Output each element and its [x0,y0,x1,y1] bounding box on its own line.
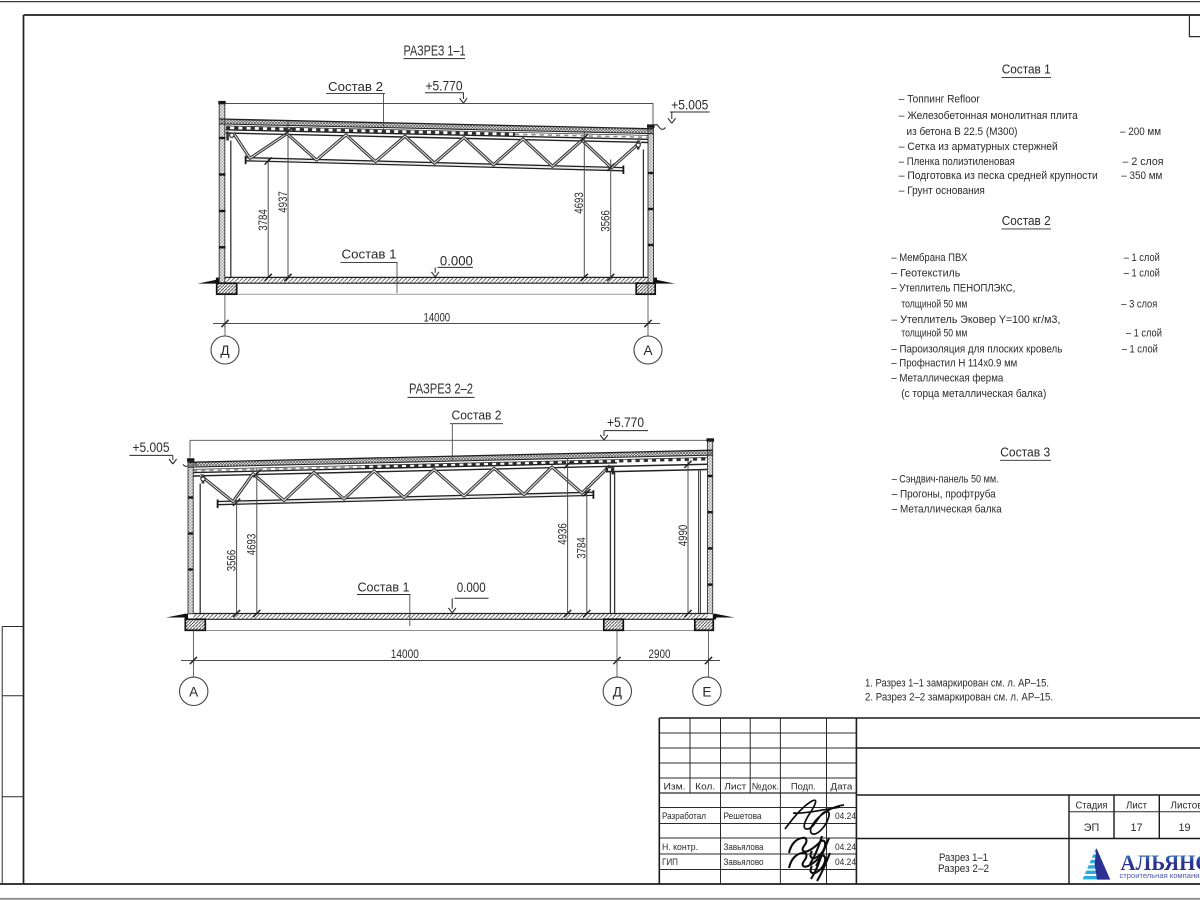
svg-text:14000: 14000 [424,311,451,325]
svg-text:3784: 3784 [256,209,270,231]
svg-text:– 2 слоя: – 2 слоя [1123,156,1164,168]
svg-text:19: 19 [1178,822,1190,834]
svg-text:Д: Д [613,684,622,699]
svg-text:2. Разрез 2–2 замаркирован см.: 2. Разрез 2–2 замаркирован см. л. АР–15. [865,692,1053,704]
svg-text:Е: Е [702,684,711,699]
svg-text:– Геотекстиль: – Геотекстиль [891,268,960,280]
svg-text:– 1 слой: – 1 слой [1126,328,1162,340]
svg-text:– Топпинг Refloor: – Топпинг Refloor [899,94,980,106]
svg-text:А: А [189,684,199,699]
svg-text:ЭП: ЭП [1084,822,1100,834]
svg-text:толщиной 50 мм: толщиной 50 мм [901,328,967,340]
svg-text:– Пленка полиэтиленовая: – Пленка полиэтиленовая [899,156,1015,168]
svg-text:+5.005: +5.005 [671,98,708,114]
svg-text:– Прогоны, профтруба: – Прогоны, профтруба [892,489,997,501]
svg-text:Состав 2: Состав 2 [1002,213,1051,228]
svg-text:Завьялово: Завьялово [724,857,764,867]
svg-text:– Сетка из арматурных стержней: – Сетка из арматурных стержней [899,141,1058,153]
svg-text:– Профнастил Н 114х0.9 мм: – Профнастил Н 114х0.9 мм [891,358,1017,370]
svg-text:+5.770: +5.770 [426,79,463,95]
svg-text:Разрез 2–2: Разрез 2–2 [938,863,989,875]
svg-text:3566: 3566 [224,549,238,571]
svg-text:Состав 1: Состав 1 [1002,62,1051,77]
svg-text:АЛЬЯНС: АЛЬЯНС [1121,850,1200,875]
svg-text:04.24: 04.24 [835,842,856,852]
svg-text:14000: 14000 [391,647,419,661]
svg-text:Подп.: Подп. [791,782,816,793]
svg-text:0.000: 0.000 [440,254,473,269]
svg-text:1. Разрез 1–1 замаркирован см.: 1. Разрез 1–1 замаркирован см. л. АР–15. [865,678,1049,690]
svg-text:Состав 1: Состав 1 [342,247,397,262]
svg-text:Дата: Дата [830,782,853,793]
svg-text:РАЗРЕЗ 2–2: РАЗРЕЗ 2–2 [409,381,473,398]
svg-text:– Утеплитель ПЕНОПЛЭКС,: – Утеплитель ПЕНОПЛЭКС, [891,282,1015,294]
svg-text:– Утеплитель Эковер Y=100 кг/м: – Утеплитель Эковер Y=100 кг/м3, [891,314,1060,326]
svg-text:– 1 слой: – 1 слой [1124,252,1160,264]
svg-text:2900: 2900 [649,647,671,661]
svg-text:Разработал: Разработал [662,811,706,821]
svg-text:Листов: Листов [1171,800,1200,811]
svg-text:4693: 4693 [245,533,259,555]
svg-text:+5.770: +5.770 [607,415,644,431]
svg-text:– Пароизоляция для плоских кро: – Пароизоляция для плоских кровель [891,344,1062,356]
svg-text:– 3 слоя: – 3 слоя [1121,299,1157,311]
svg-text:№док.: №док. [752,782,779,793]
svg-text:А: А [643,343,653,358]
svg-text:Кол.: Кол. [695,782,715,793]
svg-text:Стадия: Стадия [1076,800,1108,811]
svg-text:– Металлическая ферма: – Металлическая ферма [891,372,1004,384]
svg-text:4937: 4937 [276,191,290,213]
svg-text:0.000: 0.000 [457,580,486,595]
svg-text:из бетона В 22.5 (М300): из бетона В 22.5 (М300) [907,126,1018,138]
svg-text:– 1 слой: – 1 слой [1124,268,1160,280]
svg-text:Изм.: Изм. [664,782,686,793]
svg-text:4936: 4936 [555,523,569,545]
svg-text:– Подготовка из песка средней: – Подготовка из песка средней крупности [899,170,1098,182]
svg-text:Состав 2: Состав 2 [328,79,383,94]
svg-text:– Металлическая балка: – Металлическая балка [892,504,1003,516]
svg-text:Завьялова: Завьялова [724,842,765,852]
svg-text:17: 17 [1130,822,1142,834]
svg-text:04.24: 04.24 [835,857,856,867]
svg-text:3566: 3566 [599,210,613,232]
svg-text:– Сэндвич-панель 50 мм.: – Сэндвич-панель 50 мм. [892,474,999,486]
svg-text:– 1 слой: – 1 слой [1122,344,1158,356]
svg-text:толщиной 50 мм: толщиной 50 мм [901,299,967,311]
svg-text:– 350 мм: – 350 мм [1121,170,1162,182]
svg-text:+5.005: +5.005 [133,440,170,456]
svg-text:– 200 мм: – 200 мм [1120,126,1161,138]
svg-text:4693: 4693 [572,192,586,214]
svg-text:строительная компания: строительная компания [1120,873,1200,880]
svg-text:ГИП: ГИП [662,857,678,867]
svg-text:3784: 3784 [575,537,589,559]
svg-text:– Мембрана ПВХ: – Мембрана ПВХ [891,252,967,264]
svg-text:– Железобетонная монолитная п: – Железобетонная монолитная плита [899,110,1079,122]
svg-text:Д: Д [220,343,229,358]
svg-text:Решетова: Решетова [724,811,763,821]
svg-text:– Грунт основания: – Грунт основания [899,185,985,197]
svg-text:04.24: 04.24 [835,811,856,821]
svg-text:4990: 4990 [676,524,690,546]
svg-text:Состав 3: Состав 3 [1000,445,1050,460]
svg-text:Лист: Лист [724,782,747,793]
svg-text:(с торца металлическая балка): (с торца металлическая балка) [901,388,1046,400]
svg-text:Состав 2: Состав 2 [452,408,502,423]
svg-text:Состав 1: Состав 1 [358,580,410,595]
svg-text:Н. контр.: Н. контр. [662,842,698,852]
svg-text:Лист: Лист [1126,800,1147,811]
svg-text:РАЗРЕЗ 1–1: РАЗРЕЗ 1–1 [404,42,466,59]
